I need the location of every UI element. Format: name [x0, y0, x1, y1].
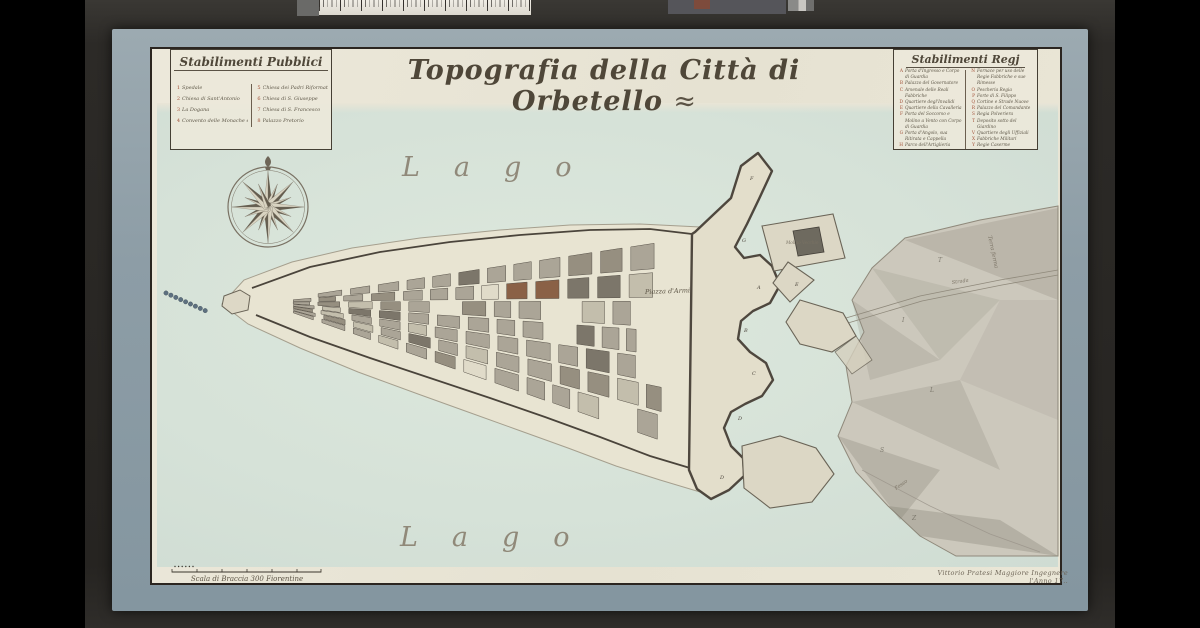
label-molino-vecchio: Molino Vecchio — [785, 240, 819, 245]
aqueduct-dot — [164, 291, 168, 295]
legend-item: 5Chiesa dei Padri Riformati del Monte Ar… — [255, 83, 329, 94]
bastion-letter: F — [749, 176, 754, 182]
city-block — [487, 266, 505, 283]
label-lago-bottom: Lago — [399, 522, 604, 553]
legend-item: TDeposito sotto del Giardino — [969, 119, 1034, 131]
legend-item-label: Spedale — [182, 83, 202, 94]
legend-divider — [965, 70, 966, 150]
aqueduct-dot — [183, 300, 187, 304]
fleur-de-lis-icon — [265, 156, 271, 170]
legend-item-label: Chiesa di S. Francesco — [263, 105, 321, 116]
city-block — [577, 325, 594, 346]
mainland-terrain — [838, 206, 1058, 556]
terrain-letter: L — [929, 387, 934, 394]
map-title-text: Topografia della Città di Orbetello — [408, 55, 800, 117]
scale-bar-label: Scala di Braccia 300 Fiorentine — [168, 575, 326, 583]
legend-item-label: Arsenale delle Reali Fabbriche — [905, 88, 962, 100]
city-block — [494, 302, 511, 318]
legend-royal-col2: NFornace per uso delle Regie Fabbriche e… — [969, 69, 1034, 150]
legend-item-index: 5 — [255, 83, 261, 94]
legend-item-index: 6 — [255, 94, 261, 105]
legend-item-index: F — [897, 112, 903, 131]
legend-item-index: T — [969, 119, 975, 131]
scale-bar — [172, 566, 321, 573]
terrain-letter: Z — [911, 515, 917, 522]
scale-dot — [192, 566, 193, 567]
legend-public-header: Stabilimenti Pubblici — [171, 55, 331, 69]
label-lago-top: Lago — [401, 152, 606, 183]
legend-item-label: Porta d'Ingresso e Corpo di Guardia — [905, 69, 962, 81]
city-block — [482, 284, 499, 299]
bastion-letter: C — [752, 371, 756, 377]
legend-item-label: Palazzo Pretorio — [263, 116, 304, 127]
scale-dot — [182, 566, 183, 567]
bastion-letter: D — [719, 475, 724, 481]
legend-royal-establishments: Stabilimenti Regj APorta d'Ingresso e Co… — [893, 49, 1038, 150]
legend-public-establishments: Stabilimenti Pubblici 1Spedale2Chiesa di… — [170, 49, 332, 150]
legend-royal-header: Stabilimenti Regj — [894, 53, 1037, 66]
legend-public-body: 1Spedale2Chiesa di Sant'Antonio3La Dogan… — [171, 83, 331, 127]
terrain-letter: S — [880, 447, 884, 454]
legend-item: GPorta d'Angolo, sua Ritirata e Cappella — [897, 131, 962, 143]
legend-item-index: 8 — [255, 116, 261, 127]
aqueduct-dots — [164, 291, 208, 313]
city-block — [381, 302, 401, 311]
bastion-letter: B — [743, 328, 748, 334]
legend-public-col1: 1Spedale2Chiesa di Sant'Antonio3La Dogan… — [174, 83, 248, 127]
scale-dot — [178, 566, 179, 567]
city-block — [430, 288, 448, 300]
bastion-letter: E — [794, 282, 799, 288]
city-block — [456, 286, 474, 300]
legend-item: 8Palazzo Pretorio — [255, 116, 329, 127]
city-block — [626, 329, 636, 352]
legend-item-index: 7 — [255, 105, 261, 116]
legend-item-index: 1 — [174, 83, 180, 94]
legend-item-label: Porta del Soccorso e Molino a Vento con … — [905, 112, 962, 131]
city-block — [601, 248, 623, 273]
legend-item: CArsenale delle Reali Fabbriche — [897, 88, 962, 100]
city-block — [569, 253, 592, 276]
city-block — [409, 302, 430, 313]
compass-rose — [228, 156, 308, 247]
legend-item-label: Chiesa dei Padri Riformati del Monte Arg… — [263, 83, 329, 94]
legend-divider — [251, 84, 252, 127]
aqueduct-dot — [169, 293, 173, 297]
city-block — [514, 262, 532, 281]
legend-item: NFornace per uso delle Regie Fabbriche e… — [969, 69, 1034, 88]
city-block — [568, 278, 589, 299]
legend-item: 2Chiesa di Sant'Antonio — [174, 94, 248, 105]
city-block — [403, 290, 422, 300]
legend-item-label: Convento delle Monache e sua Chiesa — [182, 116, 248, 127]
legend-item: 3La Dogana — [174, 105, 248, 116]
city-block — [507, 282, 527, 299]
city-block — [582, 301, 604, 323]
city-block — [462, 302, 485, 317]
legend-item: 1Spedale — [174, 83, 248, 94]
legend-item-label: Fornace per uso delle Regie Fabbriche e … — [977, 69, 1034, 88]
bastion-letter: D — [737, 416, 742, 422]
city-block — [646, 384, 661, 411]
legend-public-col2: 5Chiesa dei Padri Riformati del Monte Ar… — [255, 83, 329, 127]
map-title: Topografia della Città di Orbetello ≈ — [336, 55, 872, 117]
legend-item: 4Convento delle Monache e sua Chiesa — [174, 116, 248, 127]
city-block — [519, 301, 541, 319]
city-block — [540, 257, 561, 278]
legend-item: 6Chiesa di S. Giuseppe — [255, 94, 329, 105]
legend-item-index: C — [897, 88, 903, 100]
city-block — [598, 275, 621, 298]
city-block — [559, 345, 578, 367]
aqueduct-dot — [193, 304, 197, 308]
city-block — [536, 280, 559, 299]
scanned-map-photo: Lago Lago Piazza d'Armi Molino Vecchio S… — [0, 0, 1200, 628]
scale-dot — [174, 566, 175, 567]
city-block — [523, 321, 543, 340]
city-block — [602, 327, 619, 350]
bastion-letter: G — [742, 238, 746, 244]
aqueduct-dot — [198, 306, 202, 310]
label-piazza-darmi: Piazza d'Armi — [644, 286, 690, 296]
bastion-letter: A — [756, 285, 761, 291]
cartographer-signature: Vittorio Pratesi Maggiore Ingegnere l'An… — [918, 569, 1068, 585]
legend-item-label: Porta d'Angolo, sua Ritirata e Cappella — [905, 131, 962, 143]
aqueduct-dot — [174, 295, 178, 299]
city-block — [613, 301, 631, 325]
scale-dot — [189, 566, 190, 567]
city-block — [631, 243, 654, 270]
legend-item-index: A — [897, 69, 903, 81]
legend-item-label: Chiesa di Sant'Antonio — [182, 94, 240, 105]
legend-item-index: 3 — [174, 105, 180, 116]
fortifications — [689, 153, 872, 508]
title-flourish: ≈ — [673, 86, 696, 117]
scale-dot — [185, 566, 186, 567]
legend-item-label: La Dogana — [182, 105, 209, 116]
legend-item-label: Deposito sotto del Giardino — [977, 119, 1034, 131]
legend-item-label: Chiesa di S. Giuseppe — [263, 94, 318, 105]
legend-royal-col1: APorta d'Ingresso e Corpo di GuardiaBPal… — [897, 69, 962, 150]
aqueduct-dot — [203, 308, 207, 312]
legend-item: 7Chiesa di S. Francesco — [255, 105, 329, 116]
city-block — [468, 317, 489, 332]
city-block — [497, 319, 515, 336]
legend-item-index: 4 — [174, 116, 180, 127]
legend-item-index: G — [897, 131, 903, 143]
legend-item-index: 2 — [174, 94, 180, 105]
legend-royal-body: APorta d'Ingresso e Corpo di GuardiaBPal… — [894, 69, 1037, 150]
legend-item: FPorta del Soccorso e Molino a Vento con… — [897, 112, 962, 131]
legend-item: APorta d'Ingresso e Corpo di Guardia — [897, 69, 962, 81]
city-block — [618, 353, 636, 378]
legend-item-index: N — [969, 69, 975, 88]
aqueduct-dot — [179, 297, 183, 301]
aqueduct-dot — [188, 302, 192, 306]
